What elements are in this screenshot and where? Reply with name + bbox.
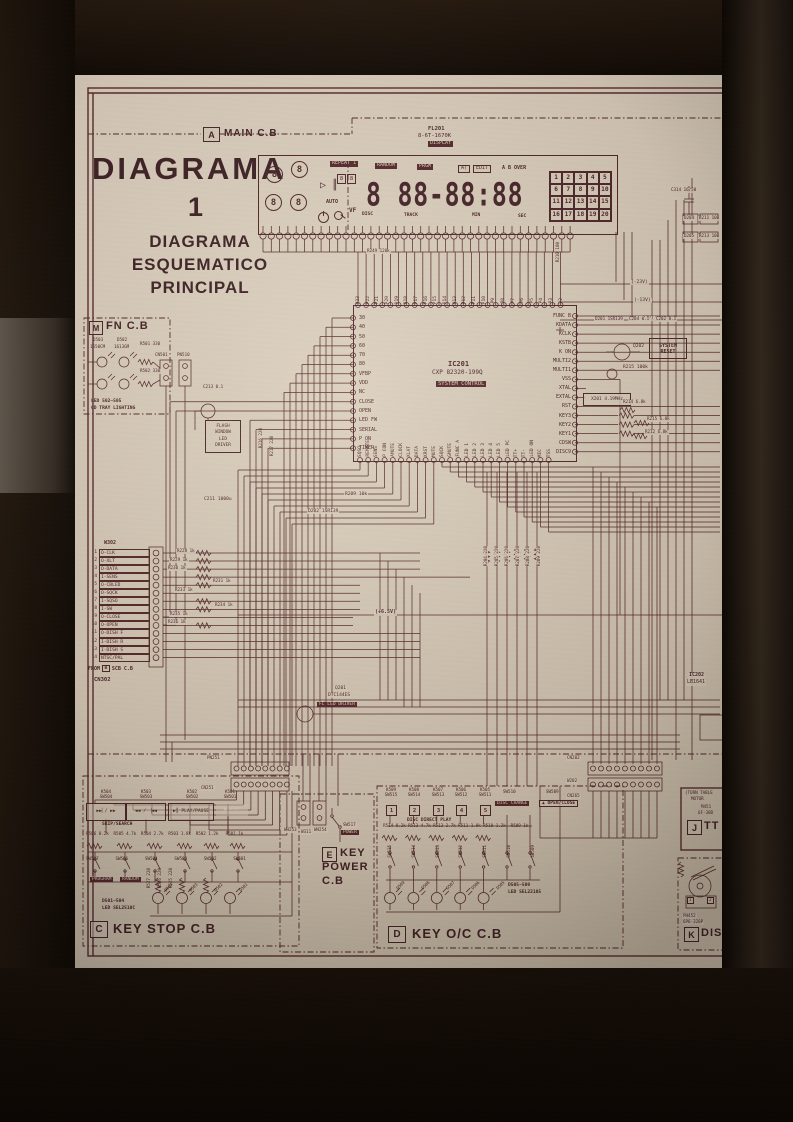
cn302-row: 5O-CBLED <box>88 581 150 589</box>
track-number: 7 <box>562 184 574 196</box>
ic-pin-label: K ON <box>486 348 571 357</box>
indicator-random: RANDOM <box>375 163 397 169</box>
cn302-signal-table: 1O-CLK2O-XLT3O-DATA4I-SENS5O-CBLED6O-SQC… <box>88 549 150 662</box>
system-reset-box: SYSTEM RESET <box>649 338 687 359</box>
ic-pin-label: P23 <box>356 296 361 304</box>
indicator-ab-over: A B OVER <box>502 166 526 172</box>
switch-label: SW513 <box>435 845 440 858</box>
ic201-function: SYSTEM CONTROL <box>436 381 486 387</box>
mic-icon <box>334 211 343 220</box>
key-refs: K508SW514 <box>403 787 425 798</box>
ic-pin-label: 30 <box>359 314 377 323</box>
mini-digit: 8 <box>337 174 346 184</box>
sw506-random: RANDOM <box>120 877 141 882</box>
system-reset-line: RESET <box>660 349 675 355</box>
play-pause-button: ▶║ PLAY/PAUSE <box>168 803 214 821</box>
r212-label: R212 6.8k <box>644 430 669 435</box>
cn302-row-cell: I-DISH S <box>99 646 151 654</box>
section-m-title: FN C.B <box>106 320 149 332</box>
key-stop-note1: D501~504 <box>102 899 124 904</box>
ic201-part: CXP 82320-199Q <box>432 370 483 377</box>
c204-label: C204 0.1 <box>628 317 650 322</box>
resistor-label: R228 1k <box>176 549 196 554</box>
ic-pin-label: P16 <box>424 296 429 304</box>
section-a-title: MAIN C.B <box>224 128 278 139</box>
ic-pin-label: REMOTE <box>366 440 371 457</box>
ic-pin-label: 40 <box>359 323 377 332</box>
subtitle-line: PRINCIPAL <box>96 276 304 299</box>
indicator-edit: EDIT <box>473 165 491 173</box>
ic202-part: LB1641 <box>686 680 706 686</box>
wh253-label: WH253 <box>283 828 298 833</box>
cn302-row-cell: 3 <box>88 565 99 573</box>
pn510-label: PN510 <box>177 353 190 358</box>
resistor-label: R207 220 <box>515 546 520 566</box>
section-d-title: KEY O/C C.B <box>412 927 502 942</box>
section-e-title-1: KEY <box>340 847 366 859</box>
ic-pin-label: VDD <box>359 379 377 388</box>
track-number: 5 <box>599 172 611 184</box>
resistor-label: R206 220 <box>504 546 509 566</box>
key-oc-note1: D505~509 <box>508 883 530 888</box>
switch-label: SW509 <box>530 845 535 858</box>
photo-frame-right <box>722 0 793 1122</box>
dis-pin-1: 1 <box>687 897 694 904</box>
w202-label: W202 <box>566 779 578 784</box>
r213-label: R213 100 <box>698 234 720 239</box>
disc-4-button: 4 <box>456 805 467 816</box>
fn-d502: D502 <box>117 338 127 343</box>
resistor-label: R527 220 <box>146 868 157 888</box>
ic201-top-pins: P23P22P21P20P19P18P17P16P15P14P13P12P11P… <box>356 277 564 304</box>
voltage-label: (-23V) <box>630 280 649 285</box>
track-number: 18 <box>574 209 586 221</box>
q201-ref: Q201 <box>334 686 347 691</box>
fn-part1: 1550CM <box>90 345 105 350</box>
disc-1-button: 1 <box>386 805 397 816</box>
ic-pin-label: P17 <box>414 296 419 304</box>
fn-r501: R501 330 <box>139 342 161 347</box>
track-number: 6 <box>550 184 562 196</box>
ic-pin-label: P15 <box>433 296 438 304</box>
vf-label: VF <box>349 208 356 215</box>
fn-r502: R502 330 <box>139 369 161 374</box>
subtitle-line: ESQUEMATICO <box>96 253 304 276</box>
ic-pin-label: MULTI1 <box>486 366 571 375</box>
key-stop-leds: D504D503D502D501 <box>163 884 250 889</box>
track-number: 1 <box>550 172 562 184</box>
photo-frame-top <box>0 0 793 75</box>
ic-pin-label: LED ON <box>530 440 535 457</box>
fn-note1: LED 502~505 <box>91 399 121 404</box>
cn302-row: 4I-SENS <box>88 573 150 581</box>
schematic-photo: A MAIN C.B DIAGRAMA 1 DIAGRAMAESQUEMATIC… <box>0 0 793 1122</box>
tt-note2: MOTOR <box>691 797 704 802</box>
ic-pin-label: SQCK <box>440 446 445 457</box>
ic-pin-label: AMUTE <box>391 443 396 457</box>
resistor-label: R510 1.2k <box>482 824 507 829</box>
flash-window-led-driver: FLASHWINDOWLEDDRIVER <box>205 420 241 453</box>
resistor-label: R205 220 <box>494 546 499 566</box>
track-number: 19 <box>587 209 599 221</box>
q201-function: FL LED DRIVER <box>317 702 357 707</box>
ic-pin-label: 60 <box>359 342 377 351</box>
resistor-label: R209 220 <box>536 546 541 566</box>
c202-label: C202 0.1 <box>655 317 677 322</box>
key-sw: SW512 <box>450 792 472 797</box>
ic-pin-label: KDATA <box>486 321 571 330</box>
seven-segment-digits: 8 88-88:88 <box>366 177 523 214</box>
disc-change-label: DISC CHANGE <box>495 801 529 806</box>
ic-pin-label: LED 5 <box>497 443 502 457</box>
section-m-tag: M <box>89 321 103 335</box>
flash-line: DRIVER <box>215 443 231 449</box>
resistor-label: R204 220 <box>483 546 488 566</box>
ic-pin-label: XTAL <box>486 384 571 393</box>
resistor-label: R514 8.2k <box>382 824 407 829</box>
cn302-row-cell: O-XLT <box>99 557 151 565</box>
cn302-row-cell: 6 <box>88 589 99 597</box>
ic-pin-label: MIC <box>538 449 543 457</box>
cn302-row-cell: I-DISH R <box>99 638 151 646</box>
cn302-row-cell: 1 <box>88 549 99 557</box>
ic-pin-label: P CON <box>383 443 388 457</box>
ic-pin-label: P7 <box>511 298 516 304</box>
key-refs: K505SW511 <box>474 787 496 798</box>
cn302-row-cell: 13 <box>88 646 99 654</box>
key-refs: K507SW513 <box>427 787 449 798</box>
ic-pin-label: P19 <box>395 296 400 304</box>
key-sw: SW501 <box>214 794 246 799</box>
track-number: 9 <box>587 184 599 196</box>
cn302-row: 14NTSC/PAL <box>88 654 150 662</box>
r220-group: R204 220R205 220R206 220R207 220R208 220… <box>483 546 541 566</box>
ic-pin-label: P10 <box>482 296 487 304</box>
cn302-row-cell: 9 <box>88 613 99 621</box>
photo-frame-left <box>0 0 75 1122</box>
key-sw: SW513 <box>427 792 449 797</box>
play-icon: ▷ <box>320 180 326 191</box>
section-a-tag: A <box>203 127 220 142</box>
cn302-row: 9O-CLOSE <box>88 613 150 621</box>
display-name-label: DISPLAY <box>428 141 453 147</box>
ic-pin-label: P3 <box>549 298 554 304</box>
display-part: 8-6T-1670K <box>418 133 451 139</box>
cn302-row-cell: O-DATA <box>99 565 151 573</box>
from-word: FROM <box>88 666 100 672</box>
indicator-repeat: REPEAT 1 <box>330 161 358 167</box>
section-c-tag: C <box>90 921 108 938</box>
switch-label: SW507 <box>86 856 99 861</box>
ic-pin-label: P20 <box>385 296 390 304</box>
dis-part1: PH452 <box>682 914 697 919</box>
switch-label: SW514 <box>411 845 416 858</box>
key-oc-leds: D509D508D507D506D505 <box>395 882 507 887</box>
key-refs: K503SW503 <box>128 789 164 800</box>
d205-label: D205 <box>683 234 695 239</box>
r210-label: R210 100 <box>556 242 561 262</box>
cn302-row-cell: O-OPEN <box>99 621 151 629</box>
ic-pin-label: P13 <box>453 296 458 304</box>
cn302-row-cell: 8 <box>88 605 99 613</box>
power-switch-label: POWER <box>341 830 359 835</box>
switch-label: SW506 <box>115 856 128 861</box>
track-number-grid: 1234567891011121314151617181920 <box>549 171 612 222</box>
cn302-row-cell: 10 <box>88 621 99 629</box>
ic-pin-label: LED 2 <box>473 443 478 457</box>
cn302-row: 3O-DATA <box>88 565 150 573</box>
ic-pin-label: DATA <box>415 446 420 457</box>
section-b-tag: B <box>102 665 110 672</box>
key-sw: SW515 <box>380 792 402 797</box>
resistor-label: R505 4.7k <box>112 832 137 837</box>
ic-pin-label: LED 1 <box>465 443 470 457</box>
key-oc-resistors: R514 8.2kR513 4.7kR512 2.7kR511 1.8kR510… <box>382 824 532 829</box>
w311-label: W311 <box>300 830 312 835</box>
fn-note2: CD TRAY LIGHTING <box>91 406 135 411</box>
ic-pin-label: P5 <box>530 298 535 304</box>
ic-pin-label: GMUTE <box>448 443 453 457</box>
cn302-row: 8I-SW <box>88 605 150 613</box>
cn302-row-cell: 5 <box>88 581 99 589</box>
tt-note1: (TURN TABLE <box>685 791 713 796</box>
section-c-title: KEY STOP C.B <box>113 922 216 937</box>
ic-pin-label: LED 3 <box>481 443 486 457</box>
cn302-label: CN302 <box>94 677 111 683</box>
track-number: 10 <box>599 184 611 196</box>
cn302-row-cell: NTSC/PAL <box>99 654 151 662</box>
resistor-label: R231 1k <box>212 579 232 584</box>
cn302-row-cell: O-DISH F <box>99 629 151 637</box>
cn302-row-cell: 4 <box>88 573 99 581</box>
r209-10k-label: R209 10k <box>344 492 368 497</box>
photo-frame-bottom <box>0 968 793 1122</box>
sw510-ref: SW510 <box>503 790 516 795</box>
r216-label: R216 220 <box>259 428 264 448</box>
skip-search-label: SKIP/SEARCH <box>102 822 132 827</box>
pn251-label: PN251 <box>206 756 221 761</box>
voltage-label: (-13V) <box>633 298 652 303</box>
ic-pin-label: FUNC A <box>456 440 461 457</box>
ic-pin-label: P8 <box>501 298 506 304</box>
ic-pin-label: NC <box>359 388 377 397</box>
track-number: 12 <box>562 196 574 208</box>
fn-part2: 1613GM <box>114 345 129 350</box>
track-number: 13 <box>574 196 586 208</box>
ic201-bottom-pins: SQSOREMOTESENSP CONAMUTECLOCKXLATDATAXRS… <box>358 406 552 457</box>
ic-pin-label: P12 <box>462 296 467 304</box>
key-sw: SW504 <box>88 794 124 799</box>
search-back-button: ◀◀ / ▕◀◀ <box>126 803 166 821</box>
resistor-label: R503 1.8k <box>167 832 192 837</box>
ic-pin-label: P6 <box>520 298 525 304</box>
section-j-title: TT <box>704 820 719 832</box>
indicator-a: A) <box>458 165 470 173</box>
track-number: 15 <box>599 196 611 208</box>
ic-pin-label: TSS <box>547 449 552 457</box>
cn302-row-cell: I-SENS <box>99 573 151 581</box>
ic-pin-label: P14 <box>443 296 448 304</box>
dis-pin-2: 2 <box>707 897 714 904</box>
track-number: 17 <box>562 209 574 221</box>
ic-pin-label: FUNC B <box>486 312 571 321</box>
key-refs: K509SW515 <box>380 787 402 798</box>
key-sw: SW514 <box>403 792 425 797</box>
display-ref: FL201 <box>428 126 445 132</box>
ic-pin-label: SQSO <box>358 446 363 457</box>
key-refs: K506SW512 <box>450 787 472 798</box>
cn202-label: CN202 <box>566 756 581 761</box>
auto-label: AUTO <box>326 200 338 206</box>
track-number: 16 <box>550 209 562 221</box>
ic-pin-label: MUTE <box>432 446 437 457</box>
r211-label: R211 100 <box>698 216 720 221</box>
ic201-ref: IC201 <box>448 361 469 369</box>
d201-label: D201 1SR139 <box>594 317 624 322</box>
c213-label: C213 0.1 <box>202 385 224 390</box>
dial-digit: 8 <box>291 161 308 178</box>
q201-part: DTC144ES <box>327 693 351 698</box>
ic-pin-label: XRST <box>424 446 429 457</box>
switch-label: SW502 <box>204 856 217 861</box>
wh254-label: WH254 <box>313 828 328 833</box>
cn302-row: 6O-SQCK <box>88 589 150 597</box>
key-stop-switches: SW507SW506SW504SW503SW502SW501 <box>86 856 246 861</box>
r215-100k-label: R215 100k <box>622 365 649 370</box>
section-k-tag: K <box>684 927 699 942</box>
cn302-row-cell: 11 <box>88 629 99 637</box>
section-e-title-2: POWER <box>322 861 369 873</box>
cn302-row: 11O-DISH F <box>88 629 150 637</box>
ic-pin-label: TT+ <box>514 449 519 457</box>
q202-label: Q202 <box>632 344 645 349</box>
ic-pin-label: KCLK <box>486 330 571 339</box>
page-title-number: 1 <box>188 192 203 222</box>
resistor-label: R511 1.8k <box>457 824 482 829</box>
r217-label: R217 220 <box>270 436 275 456</box>
cn501-label: CN501 <box>155 353 168 358</box>
page-subtitle: DIAGRAMAESQUEMATICOPRINCIPAL <box>96 230 304 299</box>
resistor-label: R501 1k <box>222 832 247 837</box>
dis-part2: 6P6-320P <box>682 920 704 925</box>
skip-button: ▶▶▏/ ▶▶ <box>86 803 126 821</box>
section-e-tag: E <box>322 847 337 862</box>
key-oc-note2: LED SEL22105 <box>508 890 541 895</box>
dial-digit: 8 <box>265 194 282 211</box>
track-number: 3 <box>574 172 586 184</box>
track-number: 14 <box>587 196 599 208</box>
ic-pin-label: EXTAL <box>486 393 571 402</box>
c211-label: C211 1000u <box>203 497 233 502</box>
cn265-label: CN265 <box>566 794 581 799</box>
dial-digit: 8 <box>266 166 283 183</box>
ic-pin-label: TT- <box>522 449 527 457</box>
ic-pin-label: P21 <box>375 296 380 304</box>
cn302-row-cell: 14 <box>88 654 99 662</box>
ic-pin-label: P9 <box>491 298 496 304</box>
indicator-prgm: PRGM <box>417 164 433 170</box>
unit-min: MIN <box>472 213 480 218</box>
resistor-label: R229 1k <box>169 558 189 563</box>
switch-label: SW510 <box>506 845 511 858</box>
d204-label: D204 <box>683 216 695 221</box>
ic-pin-label: 50 <box>359 333 377 342</box>
resistor-label: R502 1.2k <box>195 832 220 837</box>
cn302-row-cell: 2 <box>88 557 99 565</box>
section-e-title-3: C.B <box>322 875 344 887</box>
d202-label: D202 1SR139 <box>307 509 339 514</box>
r215b-label: R215 6.8k <box>646 417 671 422</box>
disc-3-button: 3 <box>433 805 444 816</box>
cn302-row-cell: O-SQCK <box>99 589 151 597</box>
resistor-label: R230 1k <box>167 566 187 571</box>
unit-sec: SEC <box>518 214 526 219</box>
key-refs: K504SW504 <box>88 789 124 800</box>
resistor-label: R233 1k <box>174 588 194 593</box>
key-sw: SW511 <box>474 792 496 797</box>
switch-label: SW512 <box>458 845 463 858</box>
power-icon <box>318 212 329 223</box>
sw517-label: SW517 <box>342 823 357 828</box>
ic-pin-label: 80 <box>359 360 377 369</box>
sw509-ref: SW509 <box>546 790 559 795</box>
open-close-label: ▲ OPEN/CLOSE <box>539 800 578 807</box>
unit-track: TRACK <box>404 213 418 218</box>
ic-pin-label: SENS <box>374 446 379 457</box>
ic-pin-label: 70 <box>359 351 377 360</box>
ic-pin-label: MULTI2 <box>486 357 571 366</box>
ic-pin-label: P4 <box>539 298 544 304</box>
cn302-row: 2O-XLT <box>88 557 150 565</box>
resistor-label: R234 1k <box>214 603 234 608</box>
from-scb-line: FROM B SCB C.B <box>88 665 133 672</box>
resistor-label: R235 1k <box>169 612 189 617</box>
cn302-row: 7I-SQSO <box>88 597 150 605</box>
key-sw: SW503 <box>128 794 164 799</box>
sw507-program: PROGRAM <box>90 877 113 882</box>
track-number: 20 <box>599 209 611 221</box>
section-d-tag: D <box>388 926 406 943</box>
ic-pin-label: XLAT <box>407 446 412 457</box>
ic-pin-label: VSS <box>486 375 571 384</box>
r214-label: R214 6.8k <box>622 400 647 405</box>
ic-pin-label: KSTB <box>486 339 571 348</box>
cn302-row: 10O-OPEN <box>88 621 150 629</box>
cn302-row-cell: I-SW <box>99 605 151 613</box>
cn302-row-cell: 12 <box>88 638 99 646</box>
section-k-title: DIS <box>701 927 722 939</box>
resistor-label: R208 220 <box>525 546 530 566</box>
ic-pin-label: P2 <box>559 298 564 304</box>
cn302-row: 1O-CLK <box>88 549 150 557</box>
key-refs: K502SW502 <box>172 789 212 800</box>
disc-5-button: 5 <box>480 805 491 816</box>
dial-digit: 8 <box>290 194 307 211</box>
track-number: 11 <box>550 196 562 208</box>
disc-2-button: 2 <box>409 805 420 816</box>
ic-pin-label: P18 <box>404 296 409 304</box>
ic-pin-label: VFBP <box>359 370 377 379</box>
resistor-label: R504 2.7k <box>140 832 165 837</box>
resistor-label: R506 8.2k <box>85 832 110 837</box>
track-number: 8 <box>574 184 586 196</box>
stop-button: ■ STOP <box>216 804 248 816</box>
cn302-row: 13I-DISH S <box>88 646 150 654</box>
ic-pin-label: P11 <box>472 296 477 304</box>
key-stop-resistors: R506 8.2kR505 4.7kR504 2.7kR503 1.8kR502… <box>85 832 247 837</box>
tt-part1: M451 <box>701 805 711 810</box>
cn302-row: 12I-DISH R <box>88 638 150 646</box>
